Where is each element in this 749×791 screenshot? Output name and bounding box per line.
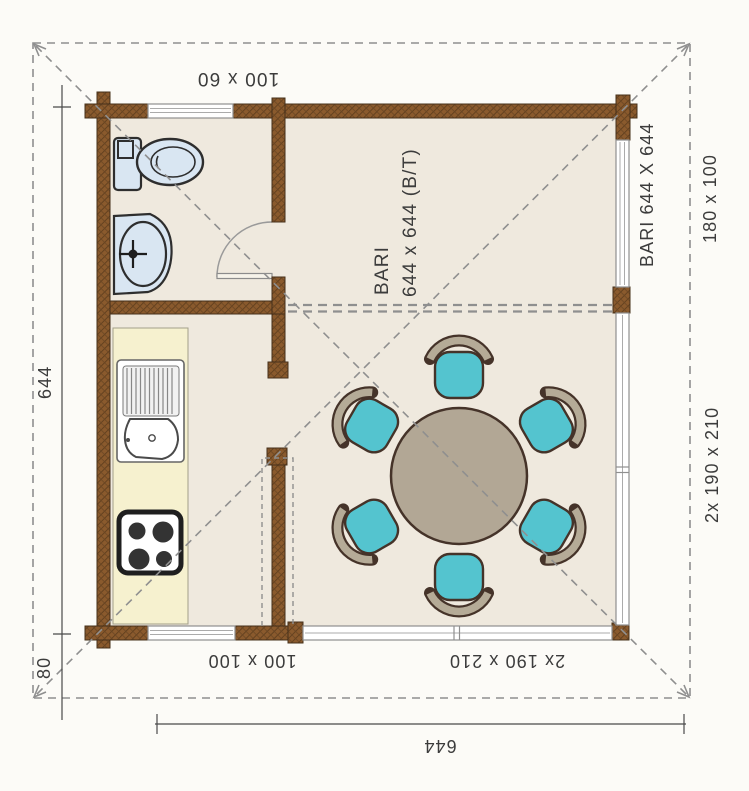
right-wall-mid-post bbox=[613, 287, 630, 313]
bottom-wall-mid bbox=[235, 626, 290, 640]
label-total-depth: 644 bbox=[35, 366, 55, 399]
kitchen-wall-upper bbox=[272, 314, 285, 362]
label-model-size: 644 x 644 (B/T) bbox=[400, 148, 421, 297]
bottom-wall-post bbox=[288, 622, 303, 643]
window-right bbox=[616, 140, 629, 287]
left-wall bbox=[97, 92, 110, 648]
kitchen-wall-lower bbox=[272, 465, 285, 626]
stove-icon bbox=[119, 512, 181, 573]
label-side-model: BARI 644 X 644 bbox=[637, 123, 657, 268]
label-total-width: 644 bbox=[423, 736, 456, 756]
glazed-door-right bbox=[616, 313, 629, 625]
kitchen-sink-icon bbox=[117, 360, 184, 462]
label-bottom-door-size: 2x 190 x 210 bbox=[449, 651, 565, 671]
label-right-door-size: 2x 190 x 210 bbox=[702, 407, 722, 523]
top-wall-left bbox=[85, 104, 148, 118]
corner-log-top-right bbox=[616, 95, 630, 140]
label-bottom-window-size: 100 x 100 bbox=[208, 651, 297, 671]
bathroom-sink-icon bbox=[114, 214, 172, 294]
label-roof-overhang: 80 bbox=[34, 657, 54, 679]
label-right-window-size: 180 x 100 bbox=[700, 154, 720, 243]
top-wall-right bbox=[233, 104, 637, 118]
floor-plan-svg: 100 x 60 BARI 644 x 644 (B/T) BARI 644 X… bbox=[0, 0, 749, 791]
label-model-name: BARI bbox=[372, 246, 393, 295]
glazed-door-bottom bbox=[303, 626, 612, 640]
floor-plan-canvas: 100 x 60 BARI 644 x 644 (B/T) BARI 644 X… bbox=[0, 0, 749, 791]
bottom-wall-left bbox=[85, 626, 148, 640]
window-top bbox=[148, 104, 233, 118]
window-bottom bbox=[148, 626, 235, 640]
dining-table bbox=[391, 408, 527, 544]
bathroom-divider-wall bbox=[110, 301, 272, 314]
bathroom-wall-stub bbox=[272, 277, 285, 314]
kitchen-wall-upper-post bbox=[268, 362, 288, 378]
bathroom-wall-upper bbox=[272, 98, 285, 222]
label-top-window-size: 100 x 60 bbox=[197, 68, 280, 89]
